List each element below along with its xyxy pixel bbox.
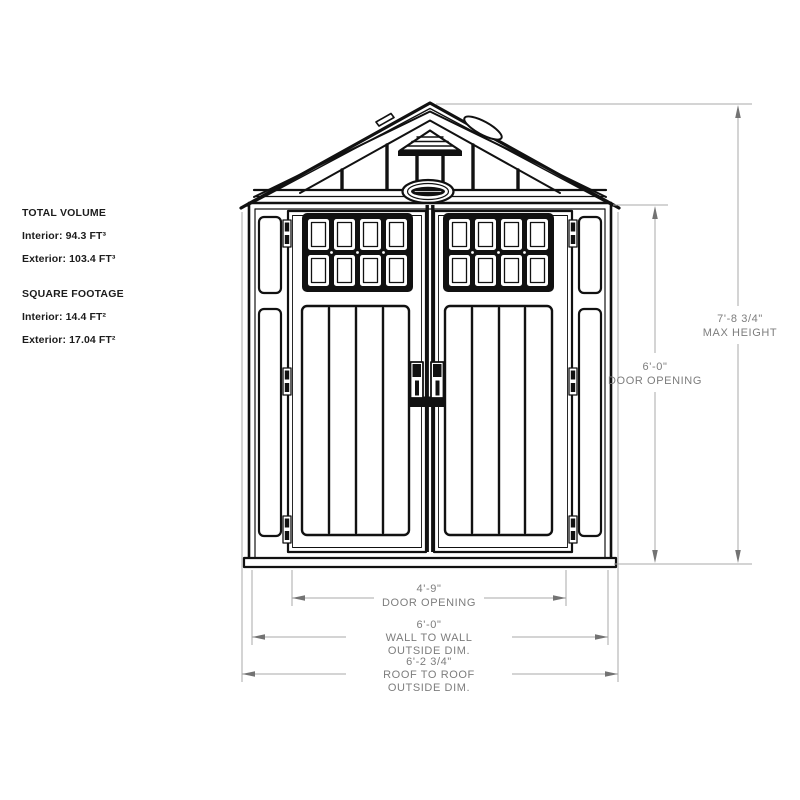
wall-to-wall-value: 6'-0" (417, 619, 442, 631)
fascia (249, 203, 611, 209)
hinge-icon (569, 368, 577, 395)
hinge-icon (283, 368, 291, 395)
brand-logo (403, 180, 454, 203)
gable-vent-icon (398, 131, 462, 157)
right-side-panel (579, 217, 601, 536)
max-height-value: 7'-8 3/4" (717, 313, 763, 325)
shed-front-elevation (241, 103, 619, 567)
door-opening-height-label: DOOR OPENING (608, 375, 702, 387)
right-door-planks (445, 306, 552, 535)
hinge-icon (283, 516, 291, 543)
drawing-svg: 7'-8 3/4" MAX HEIGHT 6'-0" DOOR OPENING … (0, 0, 800, 800)
left-door-window (302, 213, 413, 292)
roof-to-roof-label: ROOF TO ROOF (383, 669, 475, 681)
hinge-icon (283, 220, 291, 247)
right-door-window (443, 213, 554, 292)
roof-to-roof-value: 6'-2 3/4" (406, 656, 452, 668)
door-opening-width-label: DOOR OPENING (382, 597, 476, 609)
hinge-icon (569, 516, 577, 543)
roof-to-roof-sublabel: OUTSIDE DIM. (388, 682, 470, 694)
left-side-panel (259, 217, 281, 536)
door-opening-height-value: 6'-0" (643, 361, 668, 373)
max-height-label: MAX HEIGHT (703, 327, 777, 339)
left-door-planks (302, 306, 409, 535)
shed-dimension-diagram: TOTAL VOLUME Interior: 94.3 FT³ Exterior… (0, 0, 800, 800)
handle-icon (411, 362, 424, 398)
hinge-icon (569, 220, 577, 247)
base-rail (244, 558, 616, 567)
door-opening-width-value: 4'-9" (417, 583, 442, 595)
gable-framing (254, 121, 606, 204)
wall-to-wall-label: WALL TO WALL (386, 632, 473, 644)
handle-icon (431, 362, 444, 398)
